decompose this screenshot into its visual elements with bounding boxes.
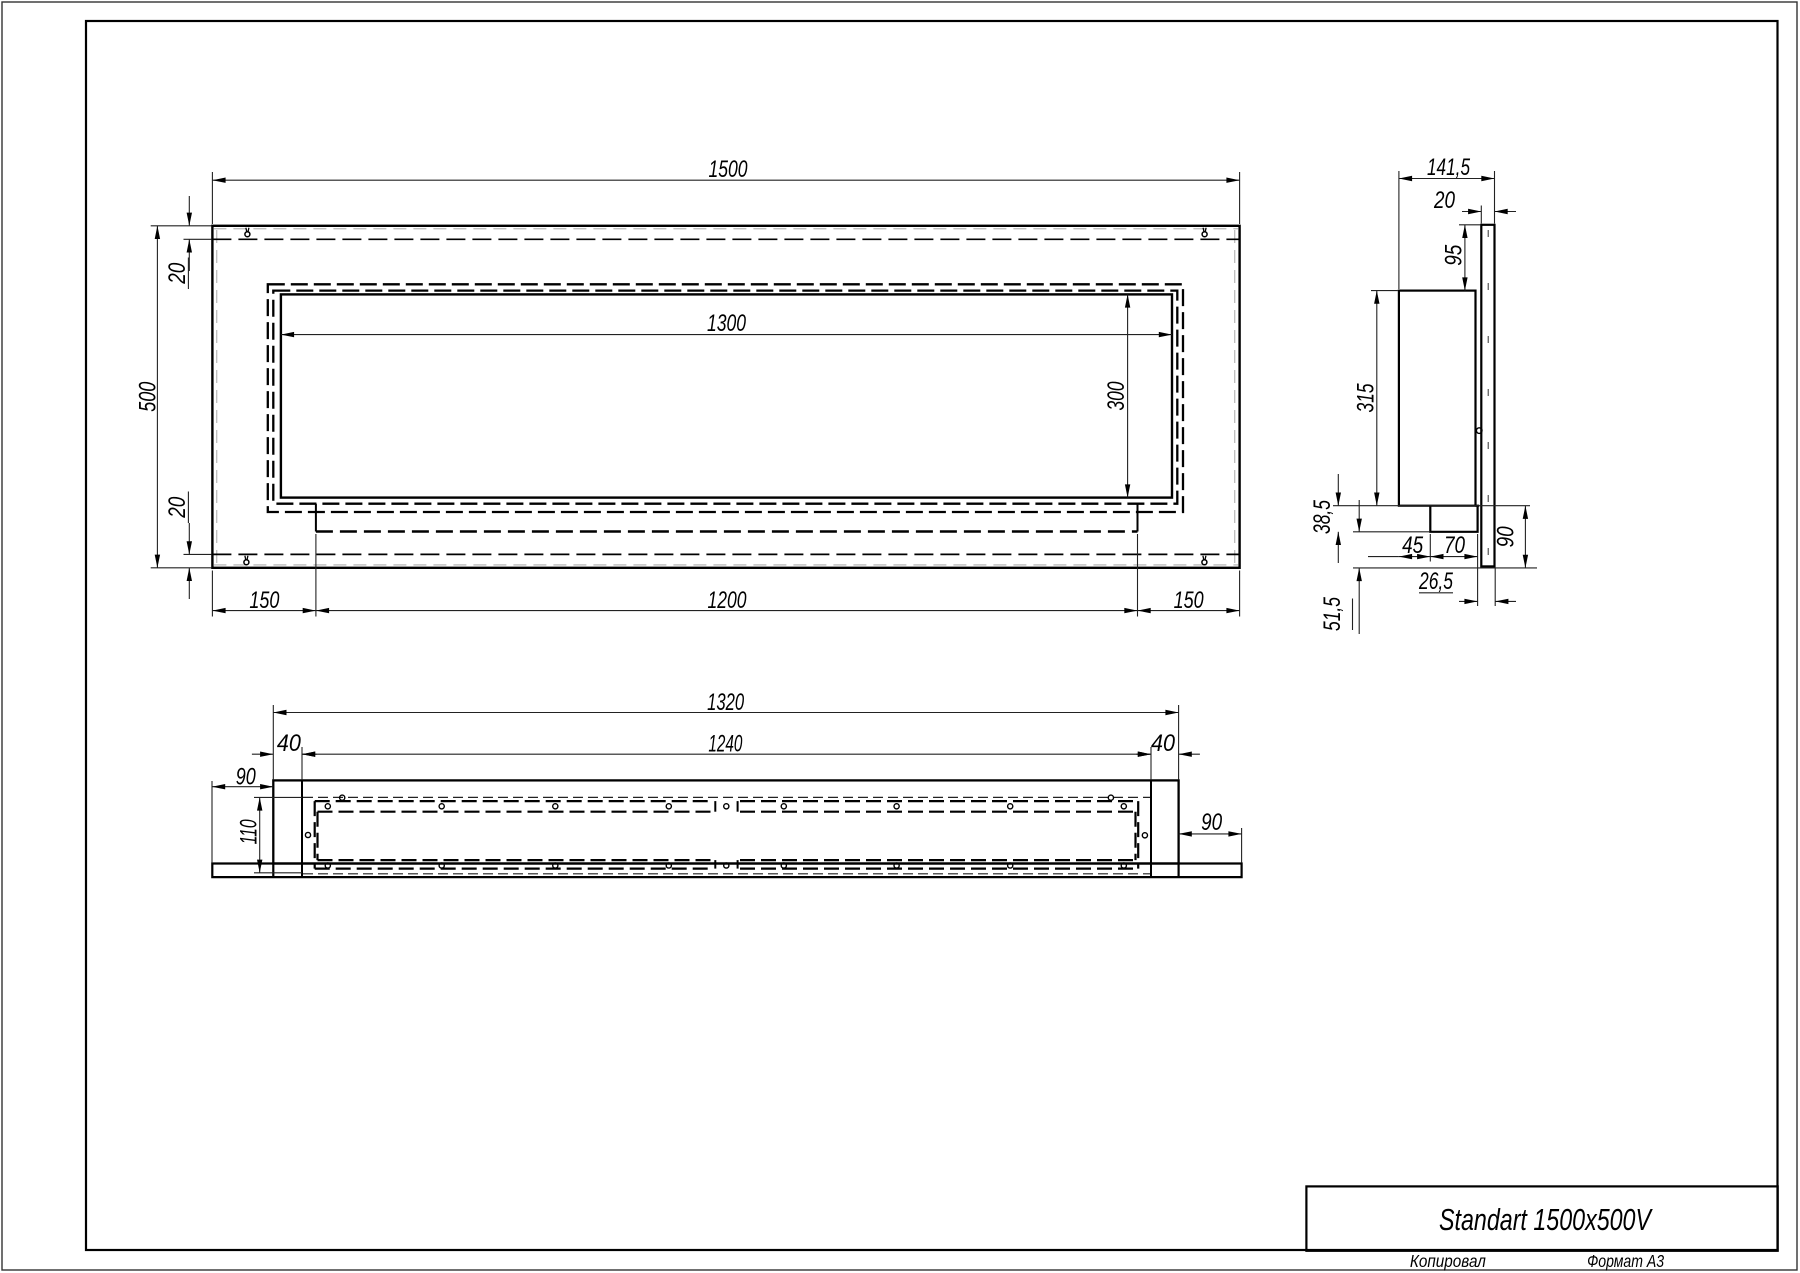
svg-text:110: 110: [235, 819, 262, 844]
svg-text:20: 20: [164, 496, 191, 518]
svg-text:141,5: 141,5: [1427, 154, 1470, 181]
svg-text:90: 90: [1201, 809, 1223, 836]
svg-text:150: 150: [1174, 587, 1204, 614]
svg-text:Копировал: Копировал: [1410, 1251, 1486, 1271]
svg-text:26,5: 26,5: [1418, 568, 1453, 595]
svg-text:1300: 1300: [707, 310, 746, 337]
svg-text:45: 45: [1402, 532, 1424, 559]
svg-text:70: 70: [1444, 532, 1466, 559]
svg-text:51,5: 51,5: [1319, 597, 1346, 631]
svg-text:1320: 1320: [707, 689, 744, 716]
svg-text:Формат А3: Формат А3: [1587, 1251, 1664, 1271]
svg-text:1240: 1240: [708, 731, 742, 758]
svg-text:20: 20: [164, 262, 191, 284]
svg-text:40: 40: [277, 730, 302, 757]
svg-text:90: 90: [1493, 526, 1520, 548]
svg-text:40: 40: [1151, 730, 1176, 757]
svg-text:90: 90: [236, 763, 256, 790]
svg-text:Standart 1500x500V: Standart 1500x500V: [1439, 1202, 1653, 1237]
svg-text:1200: 1200: [708, 587, 747, 614]
svg-text:300: 300: [1103, 381, 1130, 410]
svg-text:95: 95: [1441, 244, 1468, 266]
svg-text:38,5: 38,5: [1309, 500, 1336, 534]
svg-text:150: 150: [249, 587, 279, 614]
svg-text:315: 315: [1352, 383, 1379, 412]
svg-text:20: 20: [1433, 187, 1455, 214]
svg-text:1500: 1500: [709, 156, 748, 183]
svg-text:500: 500: [135, 381, 162, 411]
